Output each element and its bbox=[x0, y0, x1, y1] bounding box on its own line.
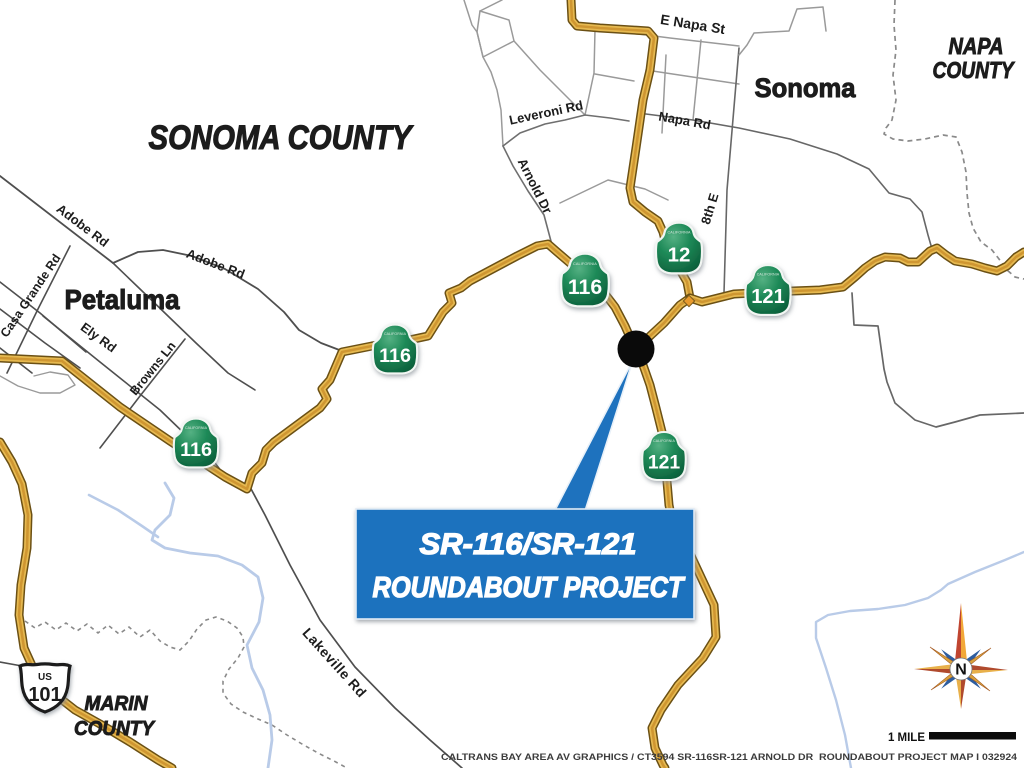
svg-text:N: N bbox=[955, 662, 967, 679]
svg-text:116: 116 bbox=[568, 275, 602, 299]
svg-text:US: US bbox=[38, 672, 52, 683]
svg-text:SONOMA COUNTY: SONOMA COUNTY bbox=[149, 119, 415, 157]
svg-text:MARIN: MARIN bbox=[85, 693, 149, 715]
svg-text:121: 121 bbox=[648, 452, 681, 474]
svg-text:Petaluma: Petaluma bbox=[65, 284, 180, 315]
svg-text:CALIFORNIA: CALIFORNIA bbox=[667, 230, 690, 234]
svg-text:116: 116 bbox=[379, 345, 411, 367]
svg-text:COUNTY: COUNTY bbox=[933, 57, 1016, 83]
svg-text:CALTRANS BAY AREA AV GRAPHICS: CALTRANS BAY AREA AV GRAPHICS / CT3594 S… bbox=[441, 752, 1017, 762]
svg-text:NAPA: NAPA bbox=[949, 33, 1004, 59]
svg-text:CALIFORNIA: CALIFORNIA bbox=[653, 439, 675, 443]
svg-text:116: 116 bbox=[180, 439, 212, 461]
svg-text:12: 12 bbox=[668, 243, 691, 266]
svg-text:COUNTY: COUNTY bbox=[74, 718, 156, 740]
svg-text:101: 101 bbox=[28, 684, 61, 706]
svg-text:ROUNDABOUT PROJECT: ROUNDABOUT PROJECT bbox=[373, 572, 686, 604]
svg-text:Sonoma: Sonoma bbox=[755, 73, 857, 103]
svg-text:CALIFORNIA: CALIFORNIA bbox=[573, 262, 597, 266]
svg-text:121: 121 bbox=[751, 286, 785, 308]
svg-text:CALIFORNIA: CALIFORNIA bbox=[384, 332, 407, 336]
svg-text:SR-116/SR-121: SR-116/SR-121 bbox=[420, 528, 637, 561]
svg-text:CALIFORNIA: CALIFORNIA bbox=[757, 273, 780, 277]
svg-text:1 MILE: 1 MILE bbox=[888, 732, 925, 744]
svg-text:CALIFORNIA: CALIFORNIA bbox=[185, 426, 208, 430]
